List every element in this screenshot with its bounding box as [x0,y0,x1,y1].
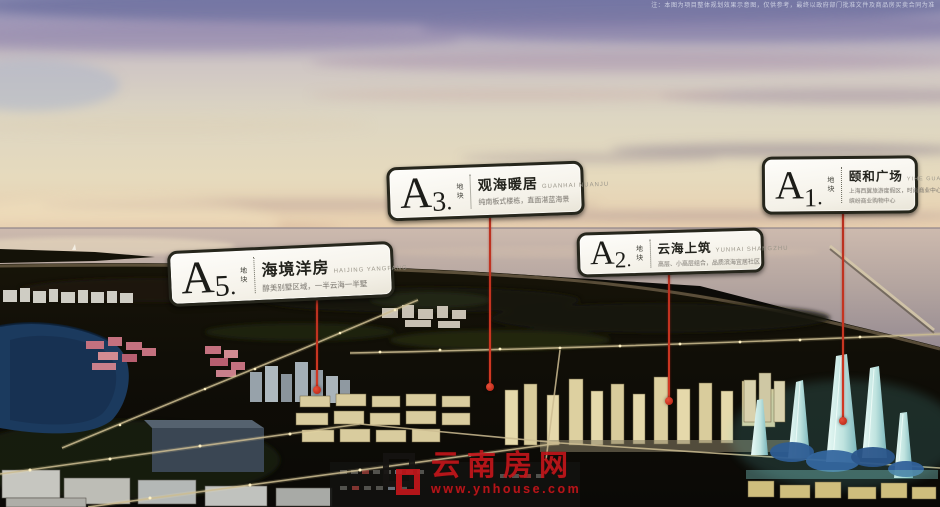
plot-code-dot: . [447,194,452,214]
label-divider [841,167,842,203]
label-divider [649,239,651,267]
plot-label-a3: A 3 . 地块 观海暖居 GUANHAI NUANJU 纯南板式楼栋，直面湛蓝… [386,161,585,222]
plot-label-a5: A 5 . 地块 海境洋房 HAIJING YANGFANG 醇美别墅区域，一半… [167,241,395,307]
plot-title: 观海暖居 [477,173,538,195]
plot-pinyin: GUANHAI NUANJU [542,182,610,190]
plot-title: 海境洋房 [261,253,330,280]
plot-code-number: 5 [214,272,230,300]
plot-pinyin: YIHE GUANGCHANG [907,175,940,182]
sunset-sky [0,0,940,262]
plot-info: 云海上筑 YUNHAI SHANGZHU 高层、小高层组合，品质滨海宜居社区 [657,234,789,268]
plot-unit-label: 地块 [633,244,643,262]
leader-dot-a3 [486,383,494,391]
plot-tagline-2: 缤纷商业购物中心 [849,194,940,204]
ynhouse-logo-icon [383,451,425,499]
watermark-site-url: www.ynhouse.com [431,482,581,496]
plot-label-a2: A 2 . 地块 云海上筑 YUNHAI SHANGZHU 高层、小高层组合，品… [576,227,764,277]
site-watermark: 云南房网 www.ynhouse.com [383,451,581,499]
plot-code-letter: A [180,256,215,299]
plot-unit-label: 地块 [237,267,248,285]
plot-tagline: 上海西翼旅游度假区，时尚商业中心 [849,184,940,194]
watermark-site-name: 云南房网 [431,451,581,481]
label-divider [253,257,256,293]
plot-code-dot: . [627,255,631,271]
plot-code-dot: . [230,278,235,299]
plot-title: 颐和广场 [849,165,903,184]
leader-dot-a5 [313,386,321,394]
leader-dot-a2 [665,397,673,405]
label-divider [469,175,471,209]
plot-unit-label: 地块 [454,183,465,201]
masterplan-photo: A 5 . 地块 海境洋房 HAIJING YANGFANG 醇美别墅区域，一半… [0,0,940,507]
plot-pinyin: YUNHAI SHANGZHU [715,245,788,253]
leader-line-a2 [668,271,670,400]
leader-dot-a1 [839,417,847,425]
plot-label-a1: A 1 . 地块 颐和广场 YIHE GUANGCHANG 上海西翼旅游度假区，… [762,155,919,214]
aerial-rendering [0,0,940,507]
leader-line-a5 [316,299,318,389]
plot-info: 观海暖居 GUANHAI NUANJU 纯南板式楼栋，直面湛蓝海景 [477,171,609,208]
plot-code-number: 1 [804,186,817,210]
leader-line-a1 [842,211,844,420]
plot-code-letter: A [775,167,804,203]
plot-code-letter: A [399,173,432,214]
disclaimer-text: 注：本图为项目整体规划效果示意图，仅供参考，最终以政府部门批准文件及商品房买卖合… [651,0,935,9]
plot-code-dot: . [818,191,822,209]
plot-pinyin: HAIJING YANGFANG [334,265,408,274]
plot-info: 海境洋房 HAIJING YANGFANG 醇美别墅区域，一半云海一半墅 [261,250,409,294]
plot-info: 颐和广场 YIHE GUANGCHANG 上海西翼旅游度假区，时尚商业中心 缤纷… [849,164,940,204]
plot-code-letter: A [590,239,615,270]
plot-unit-label: 地块 [825,176,835,194]
plot-title: 云海上筑 [657,236,712,257]
leader-line-a3 [489,214,491,386]
plot-code-number: 3 [432,189,447,215]
plot-code-number: 2 [614,251,626,272]
